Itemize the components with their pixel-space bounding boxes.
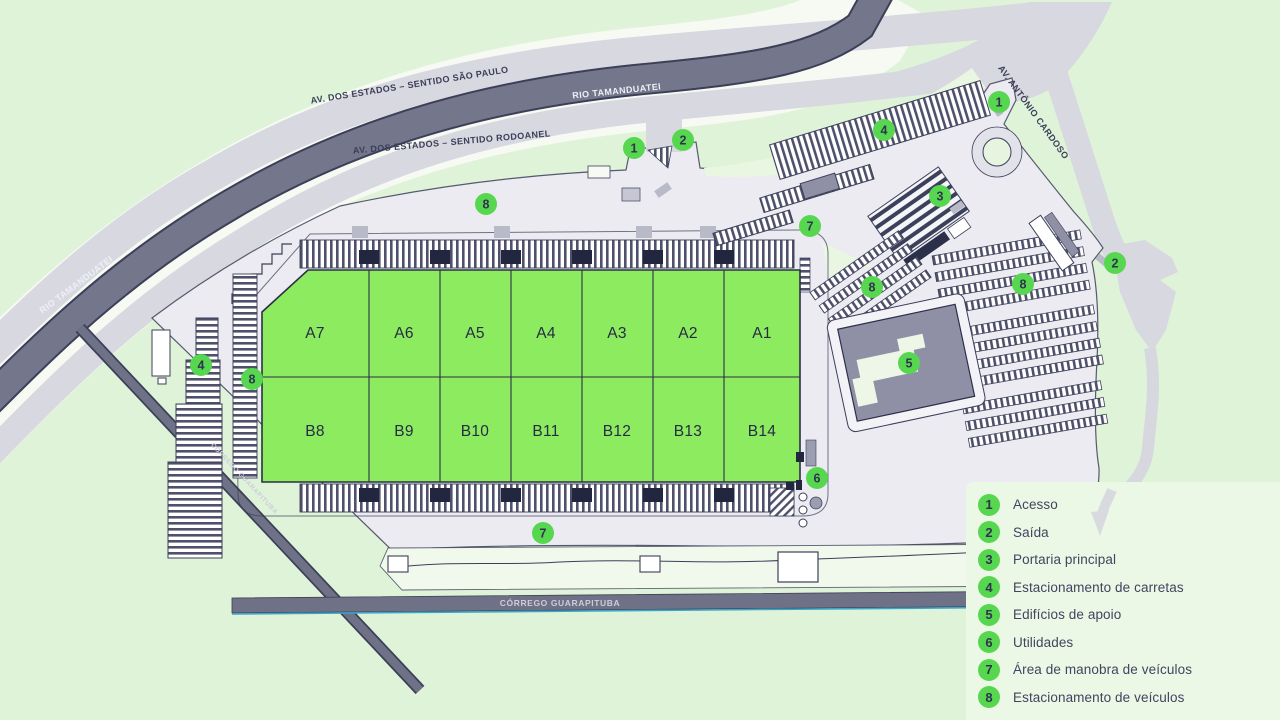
map-marker-2: 2 [672,129,694,151]
legend-label: Edifícios de apoio [1013,607,1121,622]
legend-label: Estacionamento de veículos [1013,690,1184,705]
marker-number: 4 [198,359,205,373]
map-marker-8: 8 [861,276,883,298]
map-marker-1: 1 [623,137,645,159]
marker-number: 8 [249,373,256,387]
legend-badge: 3 [978,549,1000,571]
legend-item-3: 3Portaria principal [978,546,1278,574]
marker-number: 1 [996,96,1003,110]
map-marker-5: 5 [898,352,920,374]
warehouse-unit-label: A4 [536,325,556,342]
marker-number: 8 [1020,278,1027,292]
warehouse-unit-label: A5 [465,325,485,342]
roundabout [972,127,1022,177]
warehouse-unit-label: B9 [394,423,414,440]
warehouse-unit-label: A2 [678,325,698,342]
legend-label: Utilidades [1013,635,1073,650]
map-marker-8: 8 [1012,273,1034,295]
warehouse-unit-label: B13 [674,423,702,440]
map-marker-8: 8 [241,368,263,390]
legend-item-5: 5Edifícios de apoio [978,601,1278,629]
warehouse-unit-label: A7 [305,325,325,342]
warehouse-unit-label: A3 [607,325,627,342]
legend-item-6: 6Utilidades [978,629,1278,657]
legend-badge: 1 [978,494,1000,516]
marker-number: 4 [881,124,888,138]
legend-badge: 7 [978,659,1000,681]
marker-number: 8 [869,281,876,295]
map-marker-6: 6 [806,467,828,489]
map-marker-7: 7 [532,522,554,544]
marker-number: 7 [807,220,814,234]
map-marker-4: 4 [190,354,212,376]
site-plan: A7A6A5A4A3A2A1B8B9B10B11B12B13B14 [0,0,1280,720]
legend-badge: 5 [978,604,1000,626]
warehouse-unit-label: B12 [603,423,631,440]
warehouse-unit-label: A6 [394,325,414,342]
warehouse-unit-label: B11 [532,423,559,440]
legend: 1Acesso2Saída3Portaria principal4Estacio… [978,491,1278,711]
legend-label: Estacionamento de carretas [1013,580,1184,595]
legend-item-7: 7Área de manobra de veículos [978,656,1278,684]
map-marker-8: 8 [475,193,497,215]
marker-number: 5 [906,357,913,371]
legend-label: Acesso [1013,497,1058,512]
legend-badge: 6 [978,631,1000,653]
label-corrego-bottom: CÓRREGO GUARAPITUBA [500,597,621,608]
marker-number: 6 [814,472,821,486]
legend-badge: 8 [978,686,1000,708]
marker-number: 2 [1112,257,1119,271]
legend-badge: 2 [978,521,1000,543]
marker-number: 2 [680,134,687,148]
marker-number: 1 [631,142,638,156]
map-marker-1: 1 [988,91,1010,113]
marker-number: 3 [937,190,944,204]
legend-label: Portaria principal [1013,552,1116,567]
legend-label: Saída [1013,525,1049,540]
marker-number: 8 [483,198,490,212]
warehouse-unit-label: B14 [748,423,777,440]
legend-label: Área de manobra de veículos [1013,662,1192,677]
warehouse-unit-label: B8 [305,423,325,440]
warehouse-building: A7A6A5A4A3A2A1B8B9B10B11B12B13B14 [262,270,800,482]
map-marker-3: 3 [929,185,951,207]
warehouse-unit-label: A1 [752,325,772,342]
map-marker-4: 4 [873,119,895,141]
legend-item-1: 1Acesso [978,491,1278,519]
legend-item-4: 4Estacionamento de carretas [978,574,1278,602]
map-marker-7: 7 [799,215,821,237]
marker-number: 7 [540,527,547,541]
warehouse-unit-label: B10 [461,423,490,440]
legend-badge: 4 [978,576,1000,598]
map-marker-2: 2 [1104,252,1126,274]
legend-item-2: 2Saída [978,519,1278,547]
legend-item-8: 8Estacionamento de veículos [978,684,1278,712]
